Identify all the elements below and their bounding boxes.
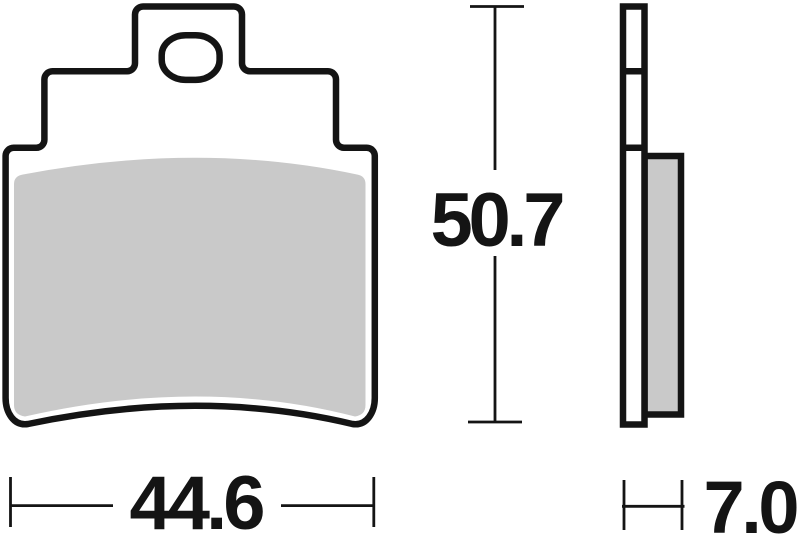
svg-text:50.7: 50.7 (431, 178, 566, 263)
svg-text:7.0: 7.0 (704, 466, 800, 535)
svg-text:44.6: 44.6 (130, 461, 266, 535)
